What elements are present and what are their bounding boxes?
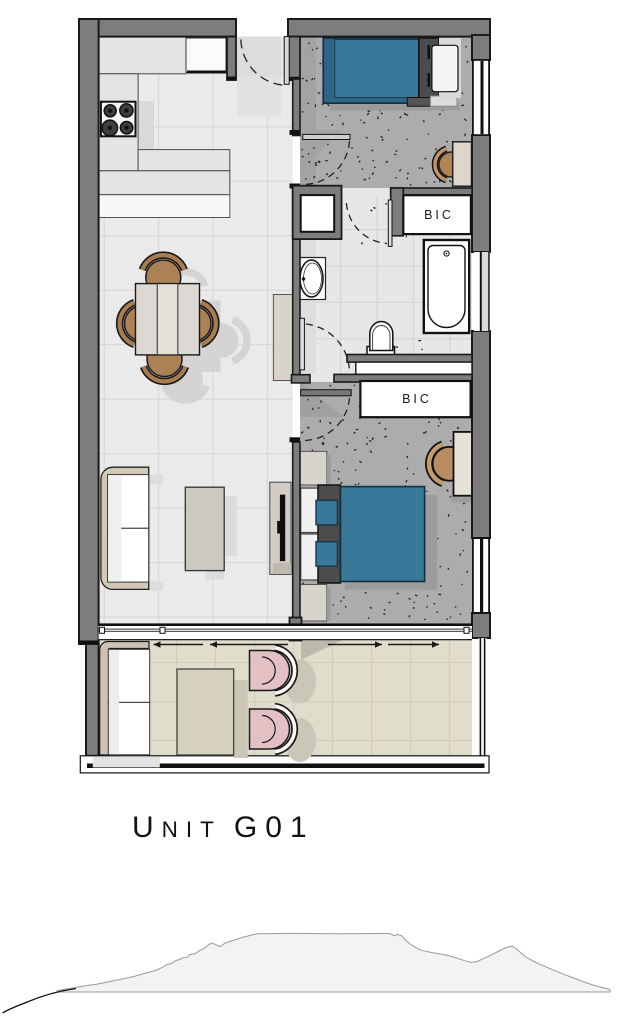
- svg-text:BIC: BIC: [402, 392, 432, 406]
- svg-text:UNITG01: UNITG01: [132, 811, 315, 844]
- svg-text:BIC: BIC: [424, 208, 454, 222]
